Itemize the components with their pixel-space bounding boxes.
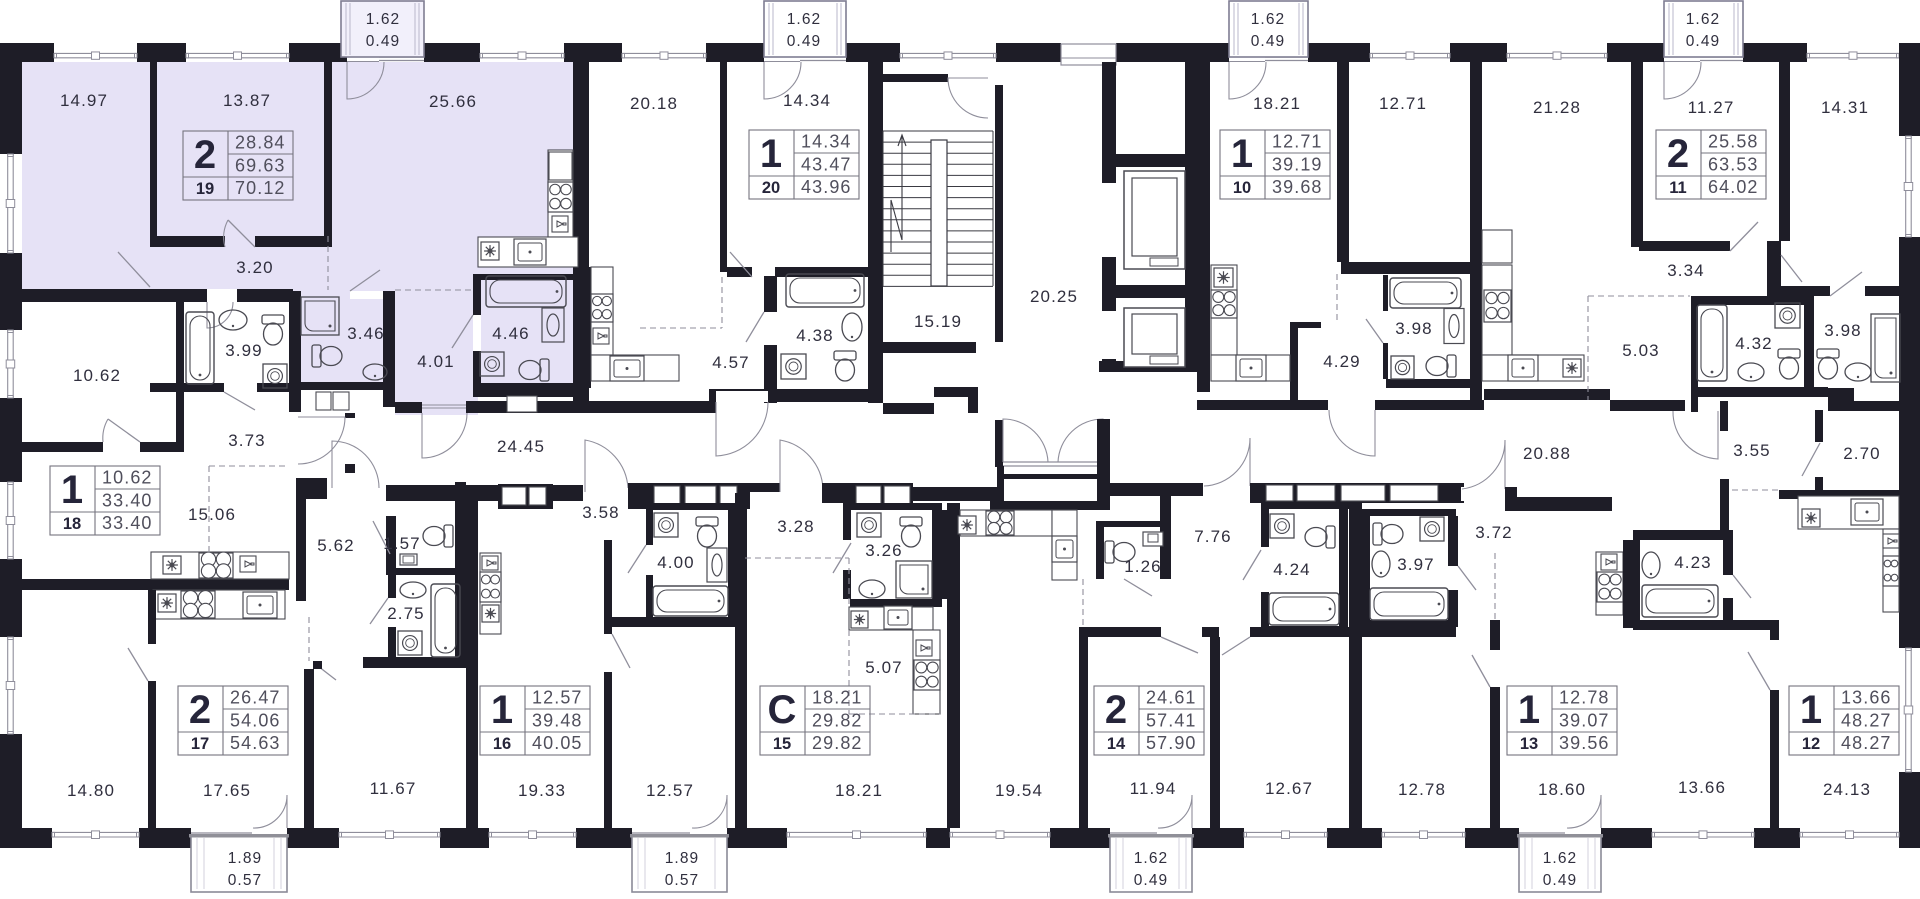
svg-text:70.12: 70.12 [235, 178, 286, 198]
svg-text:3.55: 3.55 [1733, 441, 1771, 460]
svg-text:12.71: 12.71 [1379, 94, 1427, 113]
svg-text:57.41: 57.41 [1146, 711, 1197, 731]
svg-text:0.49: 0.49 [1543, 872, 1578, 889]
svg-text:11: 11 [1669, 179, 1686, 197]
svg-text:1: 1 [1231, 132, 1253, 176]
svg-text:20.88: 20.88 [1523, 444, 1571, 463]
svg-text:48.27: 48.27 [1841, 711, 1892, 731]
svg-text:4.01: 4.01 [417, 352, 455, 371]
svg-text:14: 14 [1107, 735, 1126, 753]
svg-text:15.19: 15.19 [914, 312, 962, 331]
svg-text:1.62: 1.62 [1251, 11, 1286, 28]
svg-text:10.62: 10.62 [102, 468, 153, 488]
svg-text:12: 12 [1802, 735, 1820, 753]
svg-text:3.46: 3.46 [347, 324, 385, 343]
svg-text:2: 2 [1667, 132, 1689, 176]
svg-text:4.29: 4.29 [1323, 352, 1361, 371]
svg-text:63.53: 63.53 [1708, 155, 1759, 175]
svg-text:5.62: 5.62 [317, 536, 355, 555]
svg-text:1.62: 1.62 [787, 11, 822, 28]
svg-text:2: 2 [189, 688, 211, 732]
svg-text:13.87: 13.87 [223, 91, 271, 110]
svg-text:0.49: 0.49 [1686, 33, 1721, 50]
svg-text:33.40: 33.40 [102, 491, 153, 511]
svg-text:0.57: 0.57 [665, 872, 700, 889]
svg-text:14.80: 14.80 [67, 781, 115, 800]
svg-text:15.06: 15.06 [188, 505, 236, 524]
svg-text:13.66: 13.66 [1678, 778, 1726, 797]
svg-text:14.34: 14.34 [801, 132, 852, 152]
svg-text:2.70: 2.70 [1843, 444, 1881, 463]
svg-text:43.96: 43.96 [801, 177, 852, 197]
svg-text:1.62: 1.62 [366, 11, 401, 28]
svg-text:12.67: 12.67 [1265, 779, 1313, 798]
svg-text:28.84: 28.84 [235, 133, 286, 153]
svg-text:7.76: 7.76 [1194, 527, 1232, 546]
svg-text:3.72: 3.72 [1475, 523, 1513, 542]
svg-text:4.24: 4.24 [1273, 560, 1311, 579]
svg-text:17: 17 [191, 735, 209, 753]
svg-text:14.34: 14.34 [783, 91, 831, 110]
svg-text:4.46: 4.46 [492, 324, 530, 343]
svg-text:15: 15 [773, 735, 791, 753]
svg-text:10.62: 10.62 [73, 366, 121, 385]
svg-text:16: 16 [493, 735, 511, 753]
svg-text:18.21: 18.21 [835, 781, 883, 800]
svg-text:С: С [768, 688, 797, 732]
svg-text:5.03: 5.03 [1622, 341, 1660, 360]
svg-text:39.68: 39.68 [1272, 177, 1323, 197]
svg-text:48.27: 48.27 [1841, 733, 1892, 753]
svg-text:25.58: 25.58 [1708, 132, 1759, 152]
svg-text:12.71: 12.71 [1272, 132, 1323, 152]
svg-text:11.67: 11.67 [370, 779, 417, 798]
svg-text:1.89: 1.89 [665, 850, 700, 867]
svg-text:20.18: 20.18 [630, 94, 678, 113]
svg-text:69.63: 69.63 [235, 156, 286, 176]
svg-text:13.66: 13.66 [1841, 688, 1892, 708]
svg-text:24.13: 24.13 [1823, 780, 1871, 799]
svg-text:1.26: 1.26 [1124, 557, 1162, 576]
svg-text:3.97: 3.97 [1397, 555, 1435, 574]
svg-text:2: 2 [1105, 688, 1127, 732]
svg-text:0.49: 0.49 [1134, 872, 1169, 889]
svg-text:12.78: 12.78 [1559, 688, 1610, 708]
svg-text:12.57: 12.57 [532, 688, 583, 708]
svg-text:24.45: 24.45 [497, 437, 545, 456]
svg-text:11.27: 11.27 [1688, 98, 1735, 117]
svg-text:24.61: 24.61 [1146, 688, 1197, 708]
svg-text:1: 1 [760, 132, 782, 176]
svg-text:3.98: 3.98 [1395, 319, 1433, 338]
svg-text:14.97: 14.97 [60, 91, 108, 110]
svg-text:3.98: 3.98 [1824, 321, 1862, 340]
svg-text:18.60: 18.60 [1538, 780, 1586, 799]
svg-text:1: 1 [1518, 688, 1540, 732]
svg-text:29.82: 29.82 [812, 711, 863, 731]
svg-text:1.62: 1.62 [1686, 11, 1721, 28]
svg-text:1: 1 [1800, 688, 1822, 732]
svg-text:19.33: 19.33 [518, 781, 566, 800]
svg-text:57.90: 57.90 [1146, 733, 1197, 753]
svg-text:3.26: 3.26 [865, 541, 903, 560]
svg-text:39.19: 39.19 [1272, 155, 1323, 175]
svg-text:1: 1 [61, 468, 83, 512]
svg-text:1.57: 1.57 [383, 534, 421, 553]
svg-text:4.32: 4.32 [1735, 334, 1773, 353]
svg-text:3.28: 3.28 [777, 517, 815, 536]
svg-text:54.63: 54.63 [230, 733, 281, 753]
svg-text:20.25: 20.25 [1030, 287, 1078, 306]
svg-text:1: 1 [491, 688, 513, 732]
svg-text:18.21: 18.21 [812, 688, 863, 708]
svg-text:2.75: 2.75 [387, 604, 425, 623]
svg-text:26.47: 26.47 [230, 688, 281, 708]
svg-text:19: 19 [196, 180, 214, 198]
svg-text:12.57: 12.57 [646, 781, 694, 800]
svg-text:14.31: 14.31 [1821, 98, 1869, 117]
svg-text:43.47: 43.47 [801, 155, 852, 175]
svg-text:25.66: 25.66 [429, 92, 477, 111]
svg-text:3.58: 3.58 [582, 503, 620, 522]
svg-text:39.56: 39.56 [1559, 733, 1610, 753]
svg-text:13: 13 [1520, 735, 1538, 753]
svg-text:2: 2 [194, 133, 216, 177]
svg-text:64.02: 64.02 [1708, 177, 1759, 197]
svg-text:4.23: 4.23 [1674, 553, 1712, 572]
svg-text:1.89: 1.89 [228, 850, 263, 867]
svg-text:33.40: 33.40 [102, 513, 153, 533]
svg-text:39.48: 39.48 [532, 711, 583, 731]
svg-text:1.62: 1.62 [1543, 850, 1578, 867]
svg-text:18.21: 18.21 [1253, 94, 1301, 113]
svg-text:3.99: 3.99 [225, 341, 263, 360]
svg-text:0.49: 0.49 [1251, 33, 1286, 50]
svg-text:4.38: 4.38 [796, 326, 834, 345]
svg-text:4.00: 4.00 [657, 553, 695, 572]
svg-text:0.57: 0.57 [228, 872, 263, 889]
svg-text:20: 20 [762, 179, 780, 197]
svg-text:5.07: 5.07 [865, 658, 903, 677]
svg-text:19.54: 19.54 [995, 781, 1043, 800]
svg-text:11.94: 11.94 [1130, 779, 1177, 798]
svg-text:40.05: 40.05 [532, 733, 583, 753]
svg-text:1.62: 1.62 [1134, 850, 1169, 867]
svg-text:3.34: 3.34 [1667, 261, 1705, 280]
svg-text:3.73: 3.73 [228, 431, 266, 450]
svg-text:18: 18 [63, 515, 81, 533]
svg-text:0.49: 0.49 [366, 33, 401, 50]
svg-text:12.78: 12.78 [1398, 780, 1446, 799]
svg-text:10: 10 [1233, 179, 1251, 197]
svg-text:0.49: 0.49 [787, 33, 822, 50]
svg-text:29.82: 29.82 [812, 733, 863, 753]
svg-text:21.28: 21.28 [1533, 98, 1581, 117]
svg-text:39.07: 39.07 [1559, 711, 1610, 731]
svg-text:3.20: 3.20 [236, 258, 274, 277]
svg-text:54.06: 54.06 [230, 711, 281, 731]
svg-text:4.57: 4.57 [712, 353, 750, 372]
svg-text:17.65: 17.65 [203, 781, 251, 800]
